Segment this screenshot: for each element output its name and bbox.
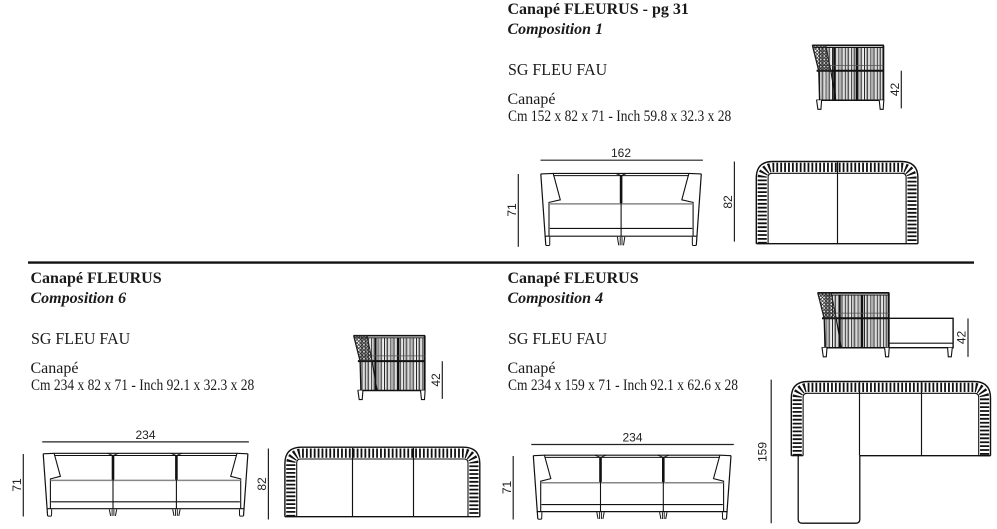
svg-text:42: 42 [429,373,443,387]
svg-text:82: 82 [255,477,269,491]
svg-text:234: 234 [622,431,642,445]
svg-text:42: 42 [955,331,969,345]
svg-text:159: 159 [755,442,769,462]
svg-text:82: 82 [721,195,735,209]
svg-text:42: 42 [888,83,902,97]
svg-text:234: 234 [135,428,155,442]
svg-text:71: 71 [10,478,24,492]
svg-text:162: 162 [611,146,631,160]
svg-text:71: 71 [500,481,514,495]
svg-text:71: 71 [505,203,519,217]
